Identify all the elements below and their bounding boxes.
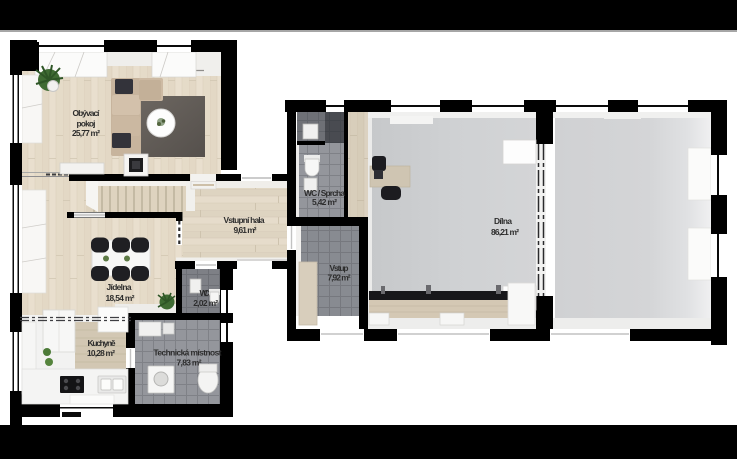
svg-text:10,28 m²: 10,28 m² <box>87 348 115 358</box>
svg-text:Obývací: Obývací <box>73 108 101 118</box>
svg-text:7,83 m²: 7,83 m² <box>177 358 202 368</box>
svg-text:Jídelna: Jídelna <box>107 282 132 292</box>
svg-text:Dílna: Dílna <box>494 216 512 226</box>
svg-text:Technická místnost: Technická místnost <box>154 348 222 358</box>
svg-text:Kuchyně: Kuchyně <box>88 338 116 348</box>
svg-text:2,02 m²: 2,02 m² <box>193 298 218 308</box>
svg-text:9,61 m²: 9,61 m² <box>234 225 257 235</box>
svg-text:WC: WC <box>200 288 210 298</box>
svg-text:5,42 m²: 5,42 m² <box>312 197 337 207</box>
svg-text:Vstup: Vstup <box>330 263 349 273</box>
svg-text:Vstupní hala: Vstupní hala <box>224 215 265 225</box>
svg-text:18,54 m²: 18,54 m² <box>106 293 135 303</box>
svg-text:25,77 m²: 25,77 m² <box>72 128 100 138</box>
svg-text:7,92 m²: 7,92 m² <box>328 273 351 283</box>
svg-text:pokoj: pokoj <box>77 119 96 129</box>
svg-text:86,21 m²: 86,21 m² <box>491 227 519 237</box>
